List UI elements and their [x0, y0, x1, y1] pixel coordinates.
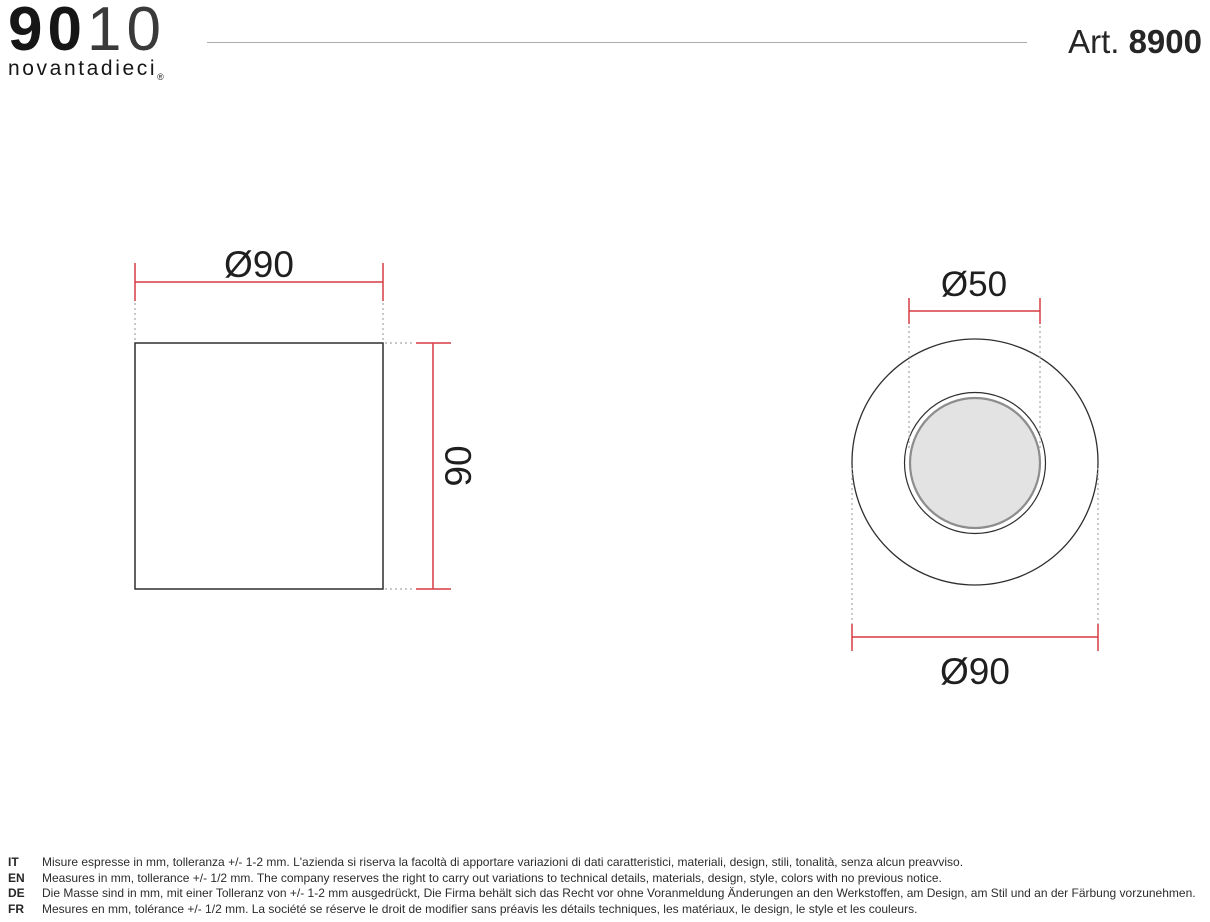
disclaimer-text-it: Misure espresse in mm, tolleranza +/- 1-… — [42, 855, 1203, 871]
front-outer-dimension-label: Ø90 — [940, 651, 1010, 692]
disclaimer-lang-de: DE — [8, 886, 42, 902]
side-view-body-outline — [135, 343, 383, 589]
front-inner-dimension-label: Ø50 — [941, 265, 1007, 304]
disclaimer-row-de: DE Die Masse sind in mm, mit einer Tolle… — [8, 886, 1203, 902]
disclaimer-lang-fr: FR — [8, 902, 42, 918]
disclaimer-row-it: IT Misure espresse in mm, tolleranza +/-… — [8, 855, 1203, 871]
footer-disclaimers: IT Misure espresse in mm, tolleranza +/-… — [8, 855, 1203, 917]
disclaimer-text-de: Die Masse sind in mm, mit einer Tolleran… — [42, 886, 1203, 902]
side-height-dimension-label: 90 — [438, 445, 479, 486]
datasheet-page: 9010 novantadieci® Art. 8900 Ø90 90 Ø50 — [0, 0, 1210, 922]
side-width-dimension-label: Ø90 — [224, 244, 294, 285]
disclaimer-lang-it: IT — [8, 855, 42, 871]
disclaimer-row-fr: FR Mesures en mm, tolérance +/- 1/2 mm. … — [8, 902, 1203, 918]
disclaimer-row-en: EN Measures in mm, tollerance +/- 1/2 mm… — [8, 871, 1203, 887]
disclaimer-text-fr: Mesures en mm, tolérance +/- 1/2 mm. La … — [42, 902, 1203, 918]
disclaimer-lang-en: EN — [8, 871, 42, 887]
technical-drawing: Ø90 90 Ø50 Ø90 — [0, 0, 1210, 922]
front-glass-disc — [910, 398, 1040, 528]
disclaimer-text-en: Measures in mm, tollerance +/- 1/2 mm. T… — [42, 871, 1203, 887]
